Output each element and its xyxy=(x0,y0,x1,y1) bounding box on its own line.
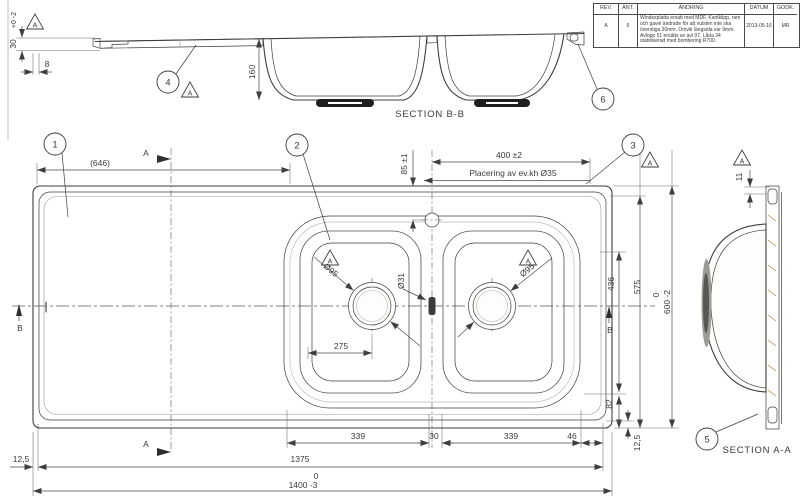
cut-label-a-bottom: A xyxy=(143,439,149,449)
mdf-edge-left-profile xyxy=(93,39,128,49)
godk-col-header: GODK. xyxy=(774,4,797,15)
section-bowl-right-outer xyxy=(437,34,564,100)
wood-grain-ticks xyxy=(768,215,776,396)
godk-value: MR xyxy=(774,15,797,47)
dim-30-mid: 30 xyxy=(429,431,439,441)
faucet-placement-note: Placering av ev.kh Ø35 xyxy=(469,168,557,178)
section-bowl-left-inner xyxy=(271,36,420,96)
dim-339-left: 339 xyxy=(351,431,365,441)
surface-flag-label: A xyxy=(740,159,745,166)
section-aa-label: SECTION A-A xyxy=(723,445,792,456)
edge-strip-top-lip xyxy=(768,189,777,204)
andring-col-header: ÄNDRING xyxy=(638,4,745,15)
overflow-hole xyxy=(429,297,436,315)
plan-view: A A Ø95 Ø95 Ø31 (646) A A 400 ±2 85 ±1 xyxy=(10,133,679,496)
cut-arrow-b-right-icon xyxy=(606,306,612,318)
drain-left-slit xyxy=(328,102,362,104)
cut-label-a-top: A xyxy=(143,148,149,158)
mdf-strip-divider xyxy=(427,36,437,43)
mdf-strip-left xyxy=(100,39,263,49)
revision-table: REV. ANT. ÄNDRING DATUM GODK. A 6 Windex… xyxy=(593,3,800,48)
section-bowl-right-inner xyxy=(445,35,555,97)
balloon-5-leader xyxy=(716,414,758,432)
dia95-right-leader-lower xyxy=(458,322,474,337)
dim-11: 11 xyxy=(734,172,744,181)
ant-value: 6 xyxy=(619,15,638,47)
balloon-2-leader xyxy=(303,154,330,240)
dim-600-upper: 0 xyxy=(651,292,661,297)
dim-1400: 1400 -3 xyxy=(289,480,318,490)
rev-col-header: REV. xyxy=(594,4,619,15)
dim-339-right: 339 xyxy=(504,431,518,441)
andring-line: stabiliserad med bombering R700. xyxy=(640,39,742,45)
datum-value: 2013-05-16 xyxy=(745,15,774,47)
drain-left xyxy=(349,283,396,330)
drain-right xyxy=(469,283,516,330)
balloon-3-leader xyxy=(586,152,625,184)
dim-46: 46 xyxy=(567,431,577,441)
cut-label-b-right: B xyxy=(607,325,613,335)
drain-right-slit xyxy=(486,102,518,104)
dim-30: 30 xyxy=(8,39,18,49)
dim-30-tol: +0 -2 xyxy=(11,12,18,28)
sink-pressed-rim xyxy=(44,197,601,415)
dia31-leader xyxy=(403,289,426,300)
bowl-profile-shading-dark xyxy=(703,273,709,333)
dim-275: 275 xyxy=(334,341,348,351)
dim-436: 436 xyxy=(606,277,616,291)
datum-col-header: DATUM xyxy=(745,4,774,15)
section-bb-label: SECTION B-B xyxy=(395,109,465,120)
balloon-6-number: 6 xyxy=(600,95,605,106)
dim-8: 8 xyxy=(45,59,50,69)
rev-value: A xyxy=(594,15,619,47)
surface-flag-label: A xyxy=(33,23,38,30)
technical-drawing-sheet: 160 30 +0 -2 8 A 4 A 6 SECTION B-B xyxy=(0,0,800,502)
dim-125-left: 12,5 xyxy=(13,454,30,464)
dim-85: 85 ±1 xyxy=(399,153,409,174)
dim-160: 160 xyxy=(247,65,257,79)
balloon-3-number: 3 xyxy=(630,141,635,152)
dim-1375: 1375 xyxy=(291,454,310,464)
edge-strip-bottom-lip xyxy=(768,407,777,423)
ant-col-header: ANT. xyxy=(619,4,638,15)
balloon-5-number: 5 xyxy=(704,435,709,446)
drawing-canvas: 160 30 +0 -2 8 A 4 A 6 SECTION B-B xyxy=(0,0,800,502)
surface-flag-label: A xyxy=(188,91,193,98)
dia95-left-leader-lower xyxy=(391,322,421,347)
cut-arrow-a-bottom-icon xyxy=(157,448,171,456)
balloon-4-number: 4 xyxy=(165,78,170,89)
dim-646: (646) xyxy=(90,158,110,168)
dim-125-right: 12,5 xyxy=(632,434,642,451)
cut-arrow-a-top-icon xyxy=(157,155,171,163)
andring-value: Windexplatta ersatt med MDF. Kantklipp, … xyxy=(638,15,745,47)
dim-600: 600 -2 xyxy=(662,290,672,314)
cut-label-b-left: B xyxy=(17,323,23,333)
section-aa-view: A 11 5 SECTION A-A xyxy=(696,150,791,456)
balloon-1-leader xyxy=(62,153,68,217)
edge-right-lip xyxy=(570,34,578,41)
section-bowl-left-outer xyxy=(263,36,427,100)
dim-400: 400 ±2 xyxy=(496,150,522,160)
bowl-profile-aa xyxy=(704,224,766,392)
balloon-1-number: 1 xyxy=(52,140,57,151)
surface-flag-label: A xyxy=(648,161,653,168)
section-bb-view: 160 30 +0 -2 8 A 4 A 6 SECTION B-B xyxy=(8,0,614,120)
mdf-edge-strip-aa xyxy=(766,186,779,429)
balloon-6-leader xyxy=(578,44,597,89)
dim-575: 575 xyxy=(632,280,642,294)
balloon-4-leader xyxy=(176,45,196,74)
dim-82: 82 xyxy=(604,399,614,409)
balloon-2-number: 2 xyxy=(294,141,299,152)
dim-dia31: Ø31 xyxy=(396,273,406,289)
